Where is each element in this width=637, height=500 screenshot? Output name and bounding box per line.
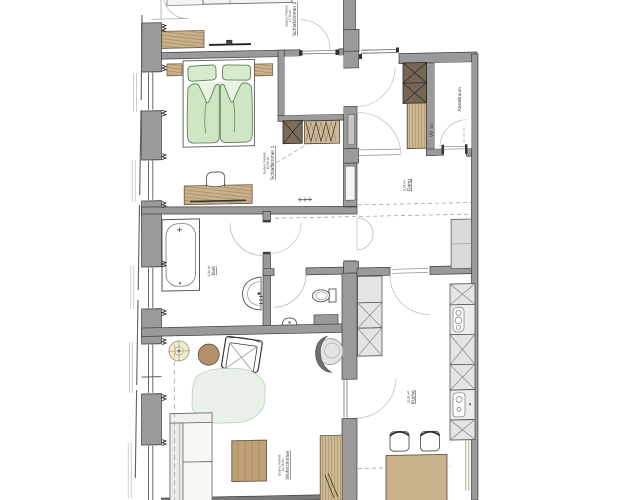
svg-text:Gang: Gang [407,179,413,192]
svg-text:8,55 m²: 8,55 m² [403,180,407,191]
svg-text:Schlafzimmer 1: Schlafzimmer 1 [270,145,276,180]
svg-text:Boden: Parkett: Boden: Parkett [278,454,282,475]
svg-text:21,76 m²: 21,76 m² [281,459,285,472]
svg-text:15,56 m²: 15,56 m² [266,157,270,170]
svg-text:Bad: Bad [211,266,217,275]
svg-text:17,76 m²: 17,76 m² [288,10,292,23]
svg-text:6,26 m²: 6,26 m² [207,265,211,276]
svg-text:Boden: Parkett: Boden: Parkett [263,152,267,173]
svg-text:Boden: Parkett: Boden: Parkett [285,5,289,26]
svg-text:Abstellraum: Abstellraum [457,87,462,112]
svg-text:DS: DS [430,123,434,129]
svg-text:Küche: Küche [411,390,417,405]
svg-text:Wohnzimmer: Wohnzimmer [285,450,291,480]
svg-text:Schlafzimmer 2: Schlafzimmer 2 [292,1,298,36]
svg-text:12,05 m²: 12,05 m² [407,391,411,404]
